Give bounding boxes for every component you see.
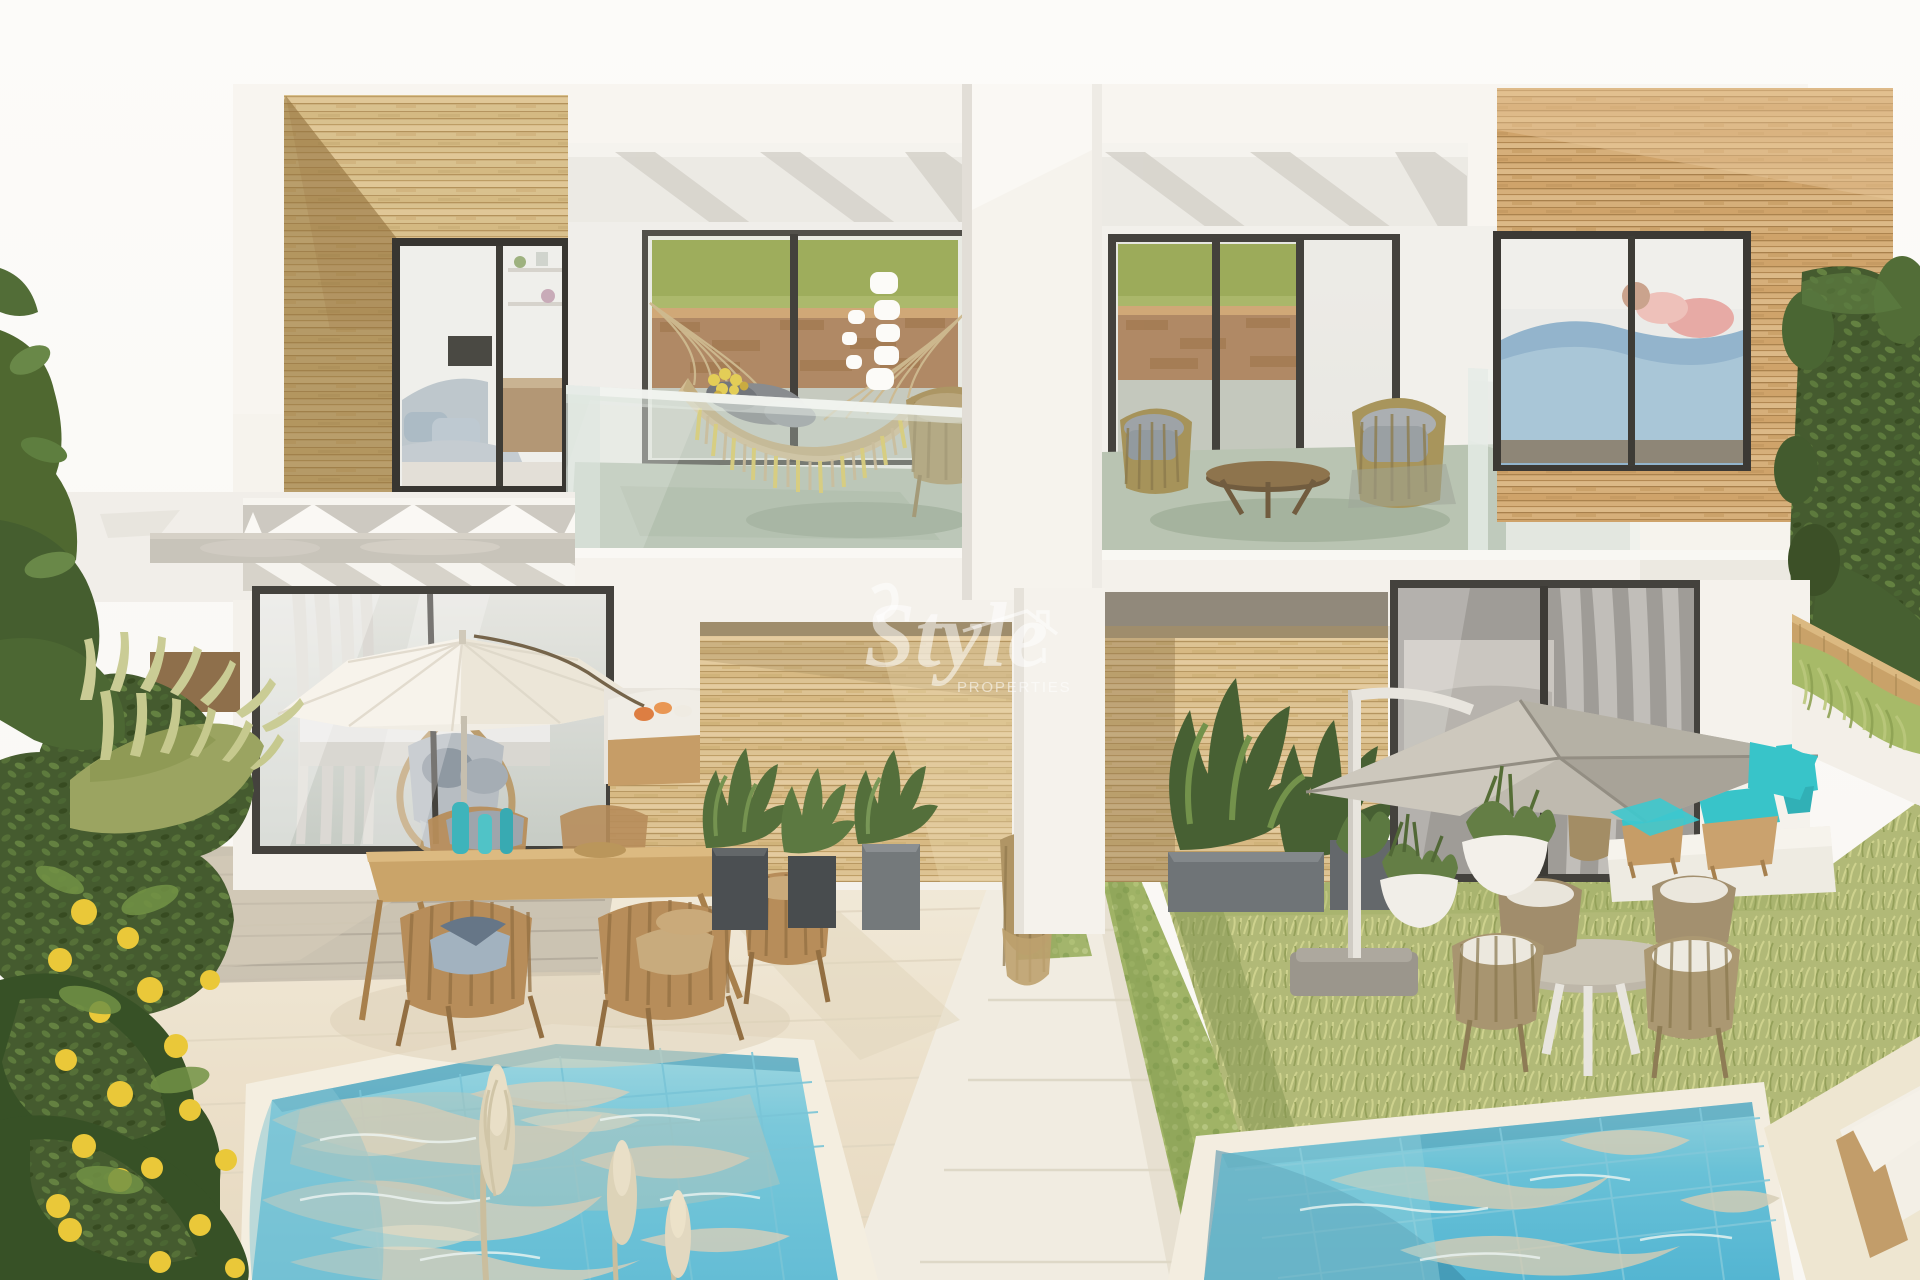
svg-text:Style: Style (864, 584, 1048, 686)
svg-text:PROPERTIES: PROPERTIES (957, 679, 1071, 696)
